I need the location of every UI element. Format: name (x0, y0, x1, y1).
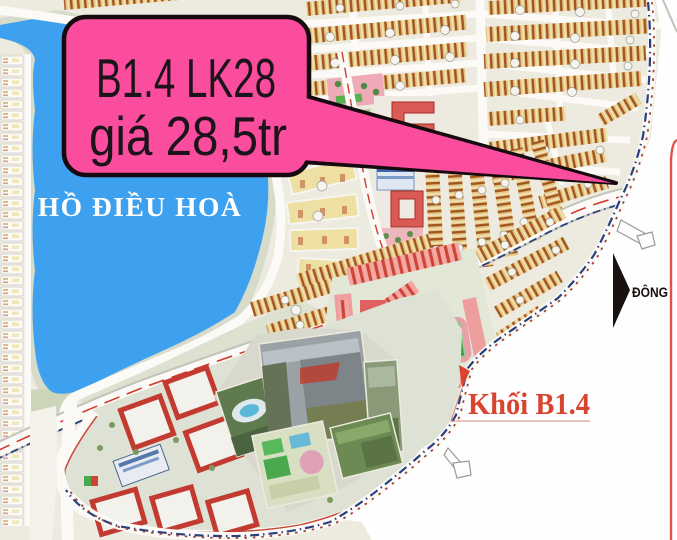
svg-text:giá 28,5tr: giá 28,5tr (89, 105, 287, 167)
svg-text:HỒ ĐIỀU HOÀ: HỒ ĐIỀU HOÀ (38, 191, 242, 222)
svg-text:Khối B1.4: Khối B1.4 (468, 386, 590, 421)
svg-text:ĐÔNG: ĐÔNG (632, 285, 668, 300)
svg-text:B1.4 LK28: B1.4 LK28 (96, 47, 276, 109)
